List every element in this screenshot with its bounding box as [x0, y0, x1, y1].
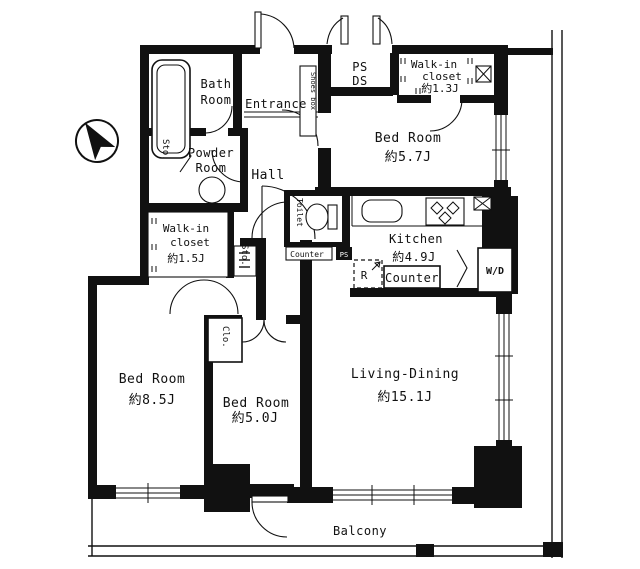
wall: [460, 95, 505, 103]
label-ps-small: PS: [340, 251, 348, 259]
walkin15-double-doors: [170, 280, 238, 314]
label-counter: Counter: [385, 271, 439, 285]
wall: [88, 276, 149, 285]
window-living-bottom: [332, 485, 452, 505]
wall: [390, 53, 399, 95]
label-clo: Clo.: [220, 326, 230, 348]
wall: [300, 240, 312, 490]
wall: [494, 45, 508, 115]
wall: [397, 95, 431, 103]
room-label-bedroom50-area: 約5.0J: [232, 411, 279, 426]
wall: [496, 440, 512, 452]
room-label-kitchen-area: 約4.9J: [392, 249, 435, 264]
wall: [284, 190, 348, 196]
room-label-bedroom50: Bed Room: [223, 396, 290, 411]
wall: [294, 45, 332, 54]
window-bedroom57: [492, 115, 510, 180]
room-label-walkin15-area: 約1.5J: [167, 251, 205, 265]
railing-post: [416, 544, 434, 557]
wall: [88, 485, 116, 499]
wall: [284, 190, 290, 247]
room-label-powder-1: Powder: [188, 146, 234, 160]
boundary-connector: [505, 48, 553, 55]
floor-plan-canvas: Bath Room Entrance Shoes box PS DS Walk-…: [0, 0, 640, 569]
wall: [140, 203, 246, 212]
label-sto-mid: Sto.: [239, 244, 249, 266]
railing-post: [543, 542, 563, 557]
room-label-ds: DS: [352, 74, 367, 88]
wall: [256, 238, 266, 320]
wall: [88, 276, 97, 499]
bedroom50-double-doors: [242, 320, 286, 342]
wall: [318, 53, 331, 113]
room-label-bedroom85: Bed Room: [119, 372, 186, 387]
label-shoes-box: Shoes box: [309, 72, 317, 110]
stove-icon: [426, 198, 464, 225]
window-bedroom85: [116, 483, 180, 503]
room-label-bedroom57: Bed Room: [375, 131, 442, 146]
wd-bifold: [457, 250, 467, 287]
toilet-icon: [306, 204, 337, 230]
label-fridge: R: [361, 269, 368, 282]
toilet-door: [252, 202, 288, 238]
room-label-bedroom57-area: 約5.7J: [385, 150, 432, 165]
room-label-walkin15-2: closet: [170, 236, 210, 249]
sink-icon: [362, 200, 402, 222]
pillar: [474, 446, 522, 508]
walkin13-door-arc: [430, 99, 462, 131]
wall: [286, 315, 312, 324]
room-label-bath-2: Room: [201, 93, 232, 107]
room-label-walkin15-1: Walk-in: [163, 222, 209, 235]
wall: [327, 87, 393, 96]
room-label-kitchen: Kitchen: [389, 232, 443, 246]
floor-plan-svg: Bath Room Entrance Shoes box PS DS Walk-…: [0, 0, 640, 569]
wall: [233, 53, 242, 136]
label-sto-upper: Sto.: [160, 139, 170, 161]
label-wd: W/D: [486, 266, 504, 277]
room-label-living-area: 約15.1J: [377, 390, 432, 405]
psds-double-doors: [327, 16, 392, 44]
windows: [116, 115, 513, 505]
room-label-walkin13-area: 約1.3J: [421, 81, 459, 95]
room-label-bath-1: Bath: [201, 77, 232, 91]
label-toilet: Toilet: [295, 198, 304, 227]
washer-icon: [199, 177, 225, 203]
wall: [342, 190, 350, 250]
room-label-entrance: Entrance: [245, 97, 307, 111]
room-label-balcony: Balcony: [333, 524, 387, 538]
room-label-living: Living-Dining: [351, 367, 459, 382]
room-label-ps: PS: [352, 60, 367, 74]
room-label-hall: Hall: [251, 168, 284, 183]
wall: [392, 45, 505, 54]
wall: [140, 45, 260, 54]
vent-shaft-icon: [476, 66, 491, 82]
label-toilet-counter: Counter: [290, 250, 324, 259]
vent-shaft-icon: [474, 197, 491, 210]
room-label-bedroom85-area: 約8.5J: [129, 393, 176, 408]
wall: [284, 242, 348, 247]
fridge-box: [354, 260, 382, 288]
compass-icon: [67, 111, 126, 170]
room-label-powder-2: Room: [196, 161, 227, 175]
entrance-door: [255, 12, 294, 48]
balcony-door: [252, 496, 288, 537]
window-living-right: [495, 314, 513, 440]
